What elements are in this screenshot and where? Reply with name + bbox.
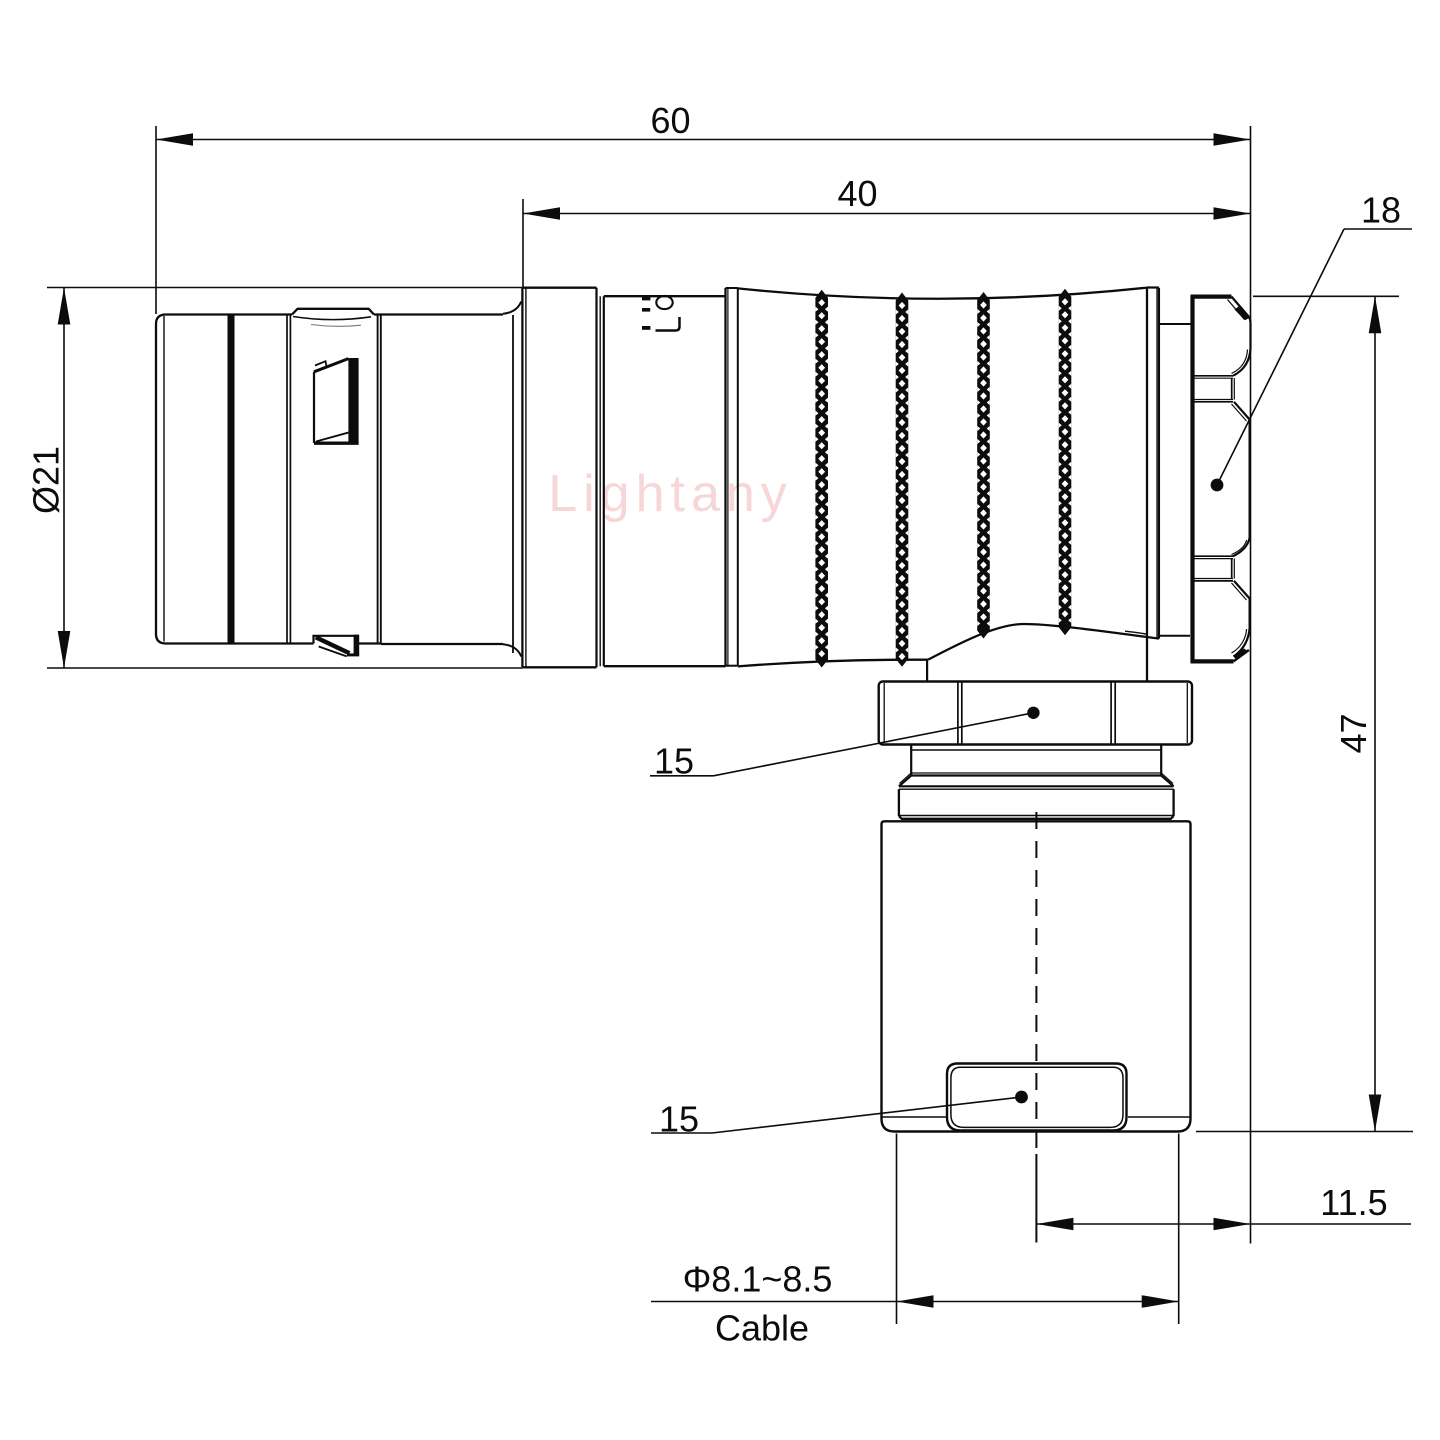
svg-text:47: 47 [1333, 713, 1374, 753]
svg-text:60: 60 [650, 100, 690, 141]
svg-text:Lightany: Lightany [548, 465, 793, 523]
svg-text:Ø21: Ø21 [26, 446, 67, 514]
svg-text:Φ8.1~8.5: Φ8.1~8.5 [683, 1259, 833, 1300]
svg-text:11.5: 11.5 [1320, 1182, 1387, 1223]
svg-text:18: 18 [1361, 190, 1401, 231]
svg-text:40: 40 [837, 173, 877, 214]
svg-text:Cable: Cable [715, 1308, 809, 1349]
